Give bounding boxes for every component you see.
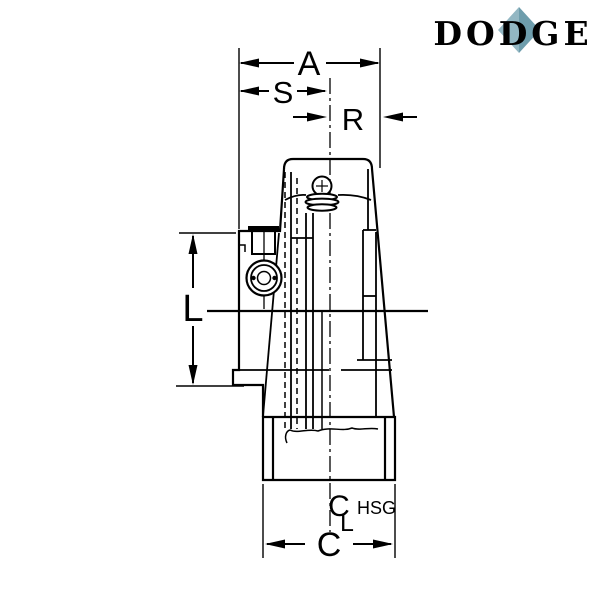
- drawing-canvas: DODGE: [0, 0, 600, 600]
- bolt-head-bar: [248, 226, 279, 232]
- dim-r-label: R: [342, 102, 364, 137]
- bearing-housing-dimension-drawing: DODGE: [0, 0, 600, 600]
- dim-c-label: C: [317, 526, 342, 564]
- dimension-l: L: [182, 234, 203, 385]
- logo-text: DODGE: [433, 14, 592, 53]
- dim-s-label: S: [273, 75, 294, 110]
- arrowhead-left-icon: [239, 59, 259, 68]
- zerk-thread-ring: [308, 204, 337, 210]
- housing-top-and-right-edge: [284, 159, 394, 417]
- dim-l-label: L: [182, 288, 203, 330]
- dodge-logo: DODGE: [433, 7, 592, 53]
- arrowhead-down-icon: [189, 365, 198, 385]
- cast-break-line: [286, 428, 378, 443]
- grease-fitting: [285, 177, 371, 211]
- dim-a-label: A: [298, 45, 321, 83]
- flange-bolt: [247, 226, 282, 309]
- boss-contour-left: [285, 195, 306, 200]
- centerline-hsg-label: HSG: [357, 498, 396, 518]
- arrowhead-right-icon: [360, 59, 380, 68]
- arrowhead-left-icon: [383, 113, 403, 122]
- arrowhead-right-icon: [307, 113, 327, 122]
- centerline-l-glyph: L: [340, 509, 354, 537]
- washer-dot: [272, 276, 276, 280]
- arrowhead-left-icon: [265, 540, 285, 549]
- housing-base: [263, 417, 395, 480]
- arrowhead-up-icon: [189, 234, 198, 254]
- arrowhead-left-icon: [239, 87, 259, 96]
- dimension-c: C: [265, 526, 393, 564]
- arrowhead-right-icon: [373, 540, 393, 549]
- dimension-a: A: [239, 45, 380, 83]
- dimension-r: R: [293, 102, 417, 137]
- arrowhead-right-icon: [307, 87, 327, 96]
- boss-contour-right: [338, 195, 371, 200]
- washer-dot: [251, 276, 255, 280]
